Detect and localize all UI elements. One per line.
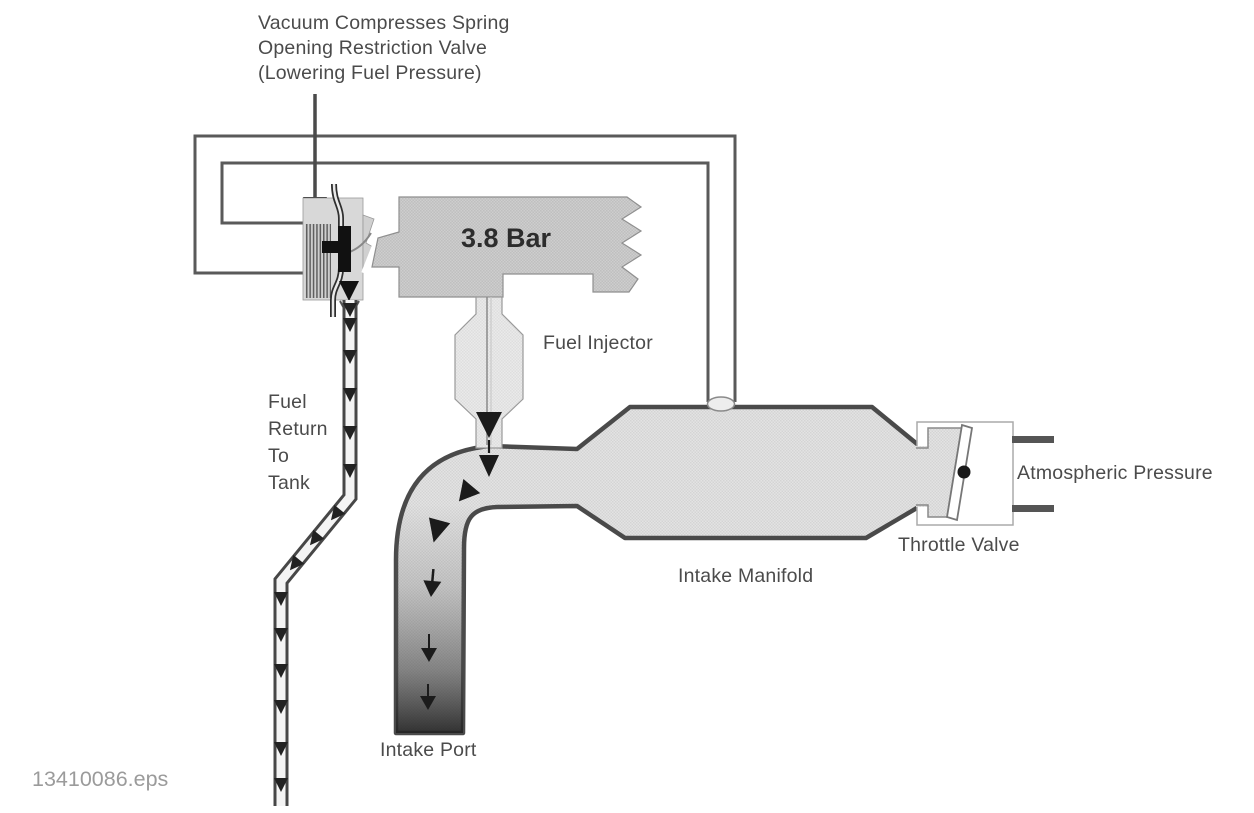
pressure-label: 3.8 Bar <box>461 223 552 253</box>
fuel-return-label-4: Tank <box>268 472 310 494</box>
atmospheric-pressure-label: Atmospheric Pressure <box>1017 462 1213 484</box>
throttle-pivot-dot-icon <box>958 466 971 479</box>
regulator-valve-piston-arm <box>322 241 338 253</box>
fuel-system-diagram: 3.8 Bar <box>0 0 1254 813</box>
regulator-valve-piston <box>338 226 351 272</box>
intake-manifold-label: Intake Manifold <box>678 565 813 587</box>
diagram-canvas: 3.8 Bar <box>0 0 1254 813</box>
fuel-return-label-1: Fuel <box>268 391 307 413</box>
annotation-line-3: (Lowering Fuel Pressure) <box>258 62 482 84</box>
atmospheric-inlet-bar-bottom <box>1012 505 1054 512</box>
manifold-vacuum-port <box>708 397 735 411</box>
annotation-line-1: Vacuum Compresses Spring <box>258 12 510 34</box>
background <box>0 0 1254 813</box>
fuel-return-label-3: To <box>268 445 289 467</box>
atmospheric-inlet-bar-top <box>1012 436 1054 443</box>
intake-port-label: Intake Port <box>380 739 477 761</box>
fuel-injector-label: Fuel Injector <box>543 332 653 354</box>
fuel-return-label-2: Return <box>268 418 328 440</box>
annotation-line-2: Opening Restriction Valve <box>258 37 487 59</box>
throttle-valve-label: Throttle Valve <box>898 534 1020 556</box>
figure-filename: 13410086.eps <box>32 767 168 791</box>
regulator-spring-icon <box>305 224 331 298</box>
